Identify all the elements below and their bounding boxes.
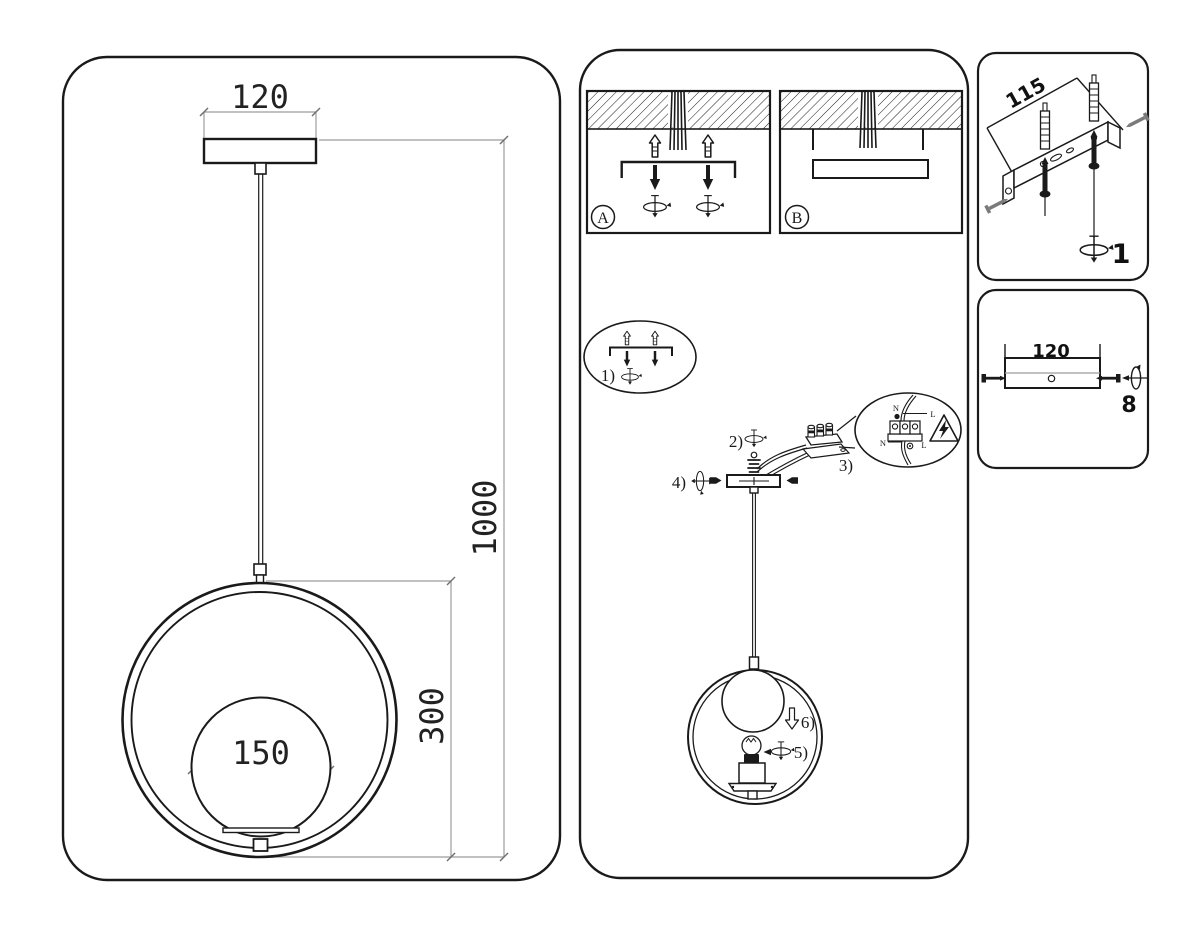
step-6-label: 6) — [801, 713, 815, 732]
option-a-label: A — [597, 210, 609, 227]
terminal-dot — [894, 414, 899, 419]
dish-screw — [732, 786, 734, 788]
wire-label-n-top: N — [893, 403, 899, 413]
dim-drop-height: 1000 — [466, 479, 504, 556]
bulb-base — [744, 754, 759, 763]
step-1-label: 1) — [601, 366, 615, 385]
wire-label-l-bottom: L — [921, 440, 926, 450]
ring-bottom-finial — [254, 839, 268, 851]
dim-canopy-width: 120 — [231, 78, 289, 116]
wire-label-n-bottom: N — [880, 438, 886, 448]
ring-bottom-finial — [748, 791, 757, 799]
installation-panel: A B 1) 2) — [580, 50, 968, 878]
dish-screw — [771, 786, 773, 788]
option-b-label: B — [792, 210, 803, 227]
instruction-sheet: 120 1000 300 150 A — [0, 0, 1200, 933]
wire-label-l-top: L — [930, 409, 935, 419]
rod-connector — [254, 564, 266, 575]
terminal-block-front — [888, 421, 922, 441]
rod-connector — [750, 657, 759, 669]
bracket-step-number: 1 — [1112, 239, 1131, 270]
canopy-stem — [255, 163, 266, 174]
dimension-drawing-panel: 120 1000 300 150 — [63, 57, 560, 880]
step-4-label: 4) — [672, 473, 686, 492]
wiring-detail-balloon: N L N L — [855, 393, 961, 467]
step-2-label: 2) — [729, 432, 743, 451]
mounting-option-a: A — [587, 91, 770, 233]
bracket-detail-panel: 115 — [978, 53, 1150, 280]
canopy — [204, 139, 316, 163]
mounting-option-b: B — [780, 91, 962, 233]
canopy-step-number: 8 — [1121, 393, 1136, 418]
step-3-label: 3) — [839, 456, 853, 475]
dim-ring-height: 300 — [413, 687, 451, 745]
socket — [739, 763, 765, 783]
diagram-canvas: 120 1000 300 150 A — [0, 0, 1200, 933]
terminal-ring-dot — [909, 445, 911, 447]
canopy-detail-panel: 120 8 — [978, 290, 1148, 468]
step-1-bracket-fixing: 1) — [584, 321, 696, 393]
canopy-mounted — [813, 160, 928, 178]
socket-dish — [729, 784, 776, 792]
canopy-stem — [750, 487, 758, 493]
sphere-dish — [223, 828, 299, 833]
glass-sphere — [722, 670, 784, 732]
step-5-label: 5) — [794, 743, 808, 762]
bulb — [742, 736, 761, 755]
dim-sphere-diameter: 150 — [232, 734, 290, 772]
